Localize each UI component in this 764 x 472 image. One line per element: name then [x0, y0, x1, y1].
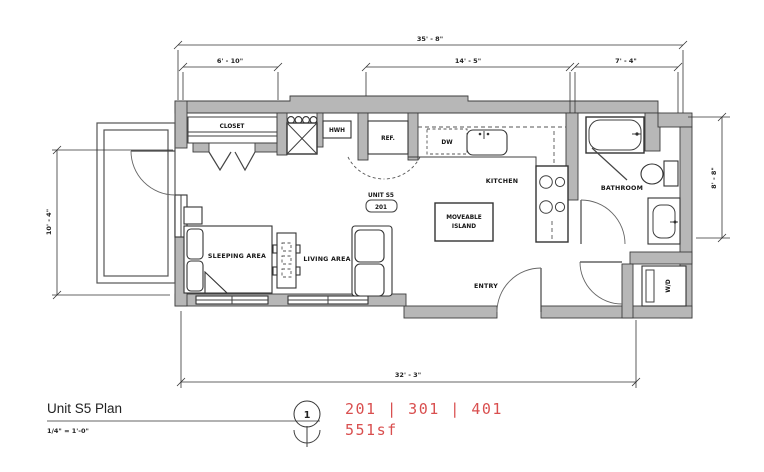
- island-label-2: ISLAND: [452, 224, 476, 230]
- pillow: [187, 229, 203, 259]
- wall-top: [175, 96, 658, 113]
- ref-label: REF.: [381, 136, 395, 142]
- unit-tag: UNIT S5 201: [366, 193, 397, 212]
- water-heater: HWH: [323, 121, 351, 138]
- range-stove: [536, 166, 568, 242]
- wall-step-topright: [658, 113, 692, 127]
- balcony: [97, 123, 175, 283]
- detail-number: 1: [304, 410, 311, 421]
- sleeping-area-label: SLEEPING AREA: [208, 253, 266, 260]
- refrigerator: REF.: [368, 121, 408, 154]
- hwh-label: HWH: [329, 128, 345, 134]
- wall-bottom-right-b: [541, 306, 692, 318]
- closet-bifold-doors: [209, 152, 255, 170]
- sheet-title: Unit S5 Plan: [47, 401, 122, 416]
- wall-bottom-right-a: [404, 306, 497, 318]
- bathroom-label: BATHROOM: [601, 185, 643, 192]
- wall-shaft-right: [317, 113, 323, 147]
- pillow: [187, 261, 203, 291]
- dim-left: 10' - 4": [45, 209, 53, 235]
- wall-wd-top: [630, 252, 692, 264]
- bathroom-door-swing: [581, 200, 625, 244]
- wall-ref-left: [358, 113, 368, 160]
- dim-bottom: 32' - 3": [395, 371, 421, 379]
- detail-marker-tail: [294, 426, 320, 447]
- sofa: [352, 226, 392, 296]
- title-block: Unit S5 Plan 1/4" = 1'-0" 1: [47, 401, 320, 447]
- mechanical-shaft: [287, 117, 317, 154]
- kitchen-label: KITCHEN: [486, 178, 518, 185]
- dimension-right-height: 8' - 8": [688, 113, 730, 242]
- floor-plan-sheet: CLOSET HWH REF. DW: [0, 0, 764, 472]
- wall-shaft-left: [277, 113, 287, 155]
- wall-ref-right: [408, 113, 418, 160]
- toilet: [641, 161, 678, 186]
- bed: [184, 207, 272, 293]
- floor-plan-drawing: CLOSET HWH REF. DW: [0, 0, 764, 472]
- wd-label: W/D: [666, 279, 672, 293]
- unit-name: UNIT S5: [368, 193, 394, 199]
- callout-unit-numbers: 201 | 301 | 401: [345, 400, 503, 418]
- dim-closet: 6' - 10": [217, 57, 243, 65]
- moveable-island: MOVEABLE ISLAND: [435, 203, 493, 241]
- media-console: [273, 233, 300, 288]
- living-area-label: LIVING AREA: [303, 256, 350, 263]
- kitchen-counter: DW: [408, 127, 566, 166]
- dimension-closet-width: 6' - 10": [179, 57, 282, 100]
- washer-dryer: W/D: [642, 266, 686, 306]
- wall-closet-stub-left: [193, 143, 209, 152]
- wall-left-top: [175, 101, 187, 148]
- wall-wd-left: [622, 264, 633, 318]
- entry-label: ENTRY: [474, 283, 498, 290]
- callout-area: 551sf: [345, 421, 398, 439]
- dim-bath: 7' - 4": [615, 57, 637, 65]
- wd-door-swing: [580, 262, 622, 304]
- unit-callout: 201 | 301 | 401 551sf: [345, 400, 503, 439]
- unit-number: 201: [375, 205, 387, 211]
- dimension-bottom-width: 32' - 3": [177, 311, 640, 388]
- bathtub: [586, 117, 644, 153]
- sheet-scale: 1/4" = 1'-0": [47, 427, 89, 435]
- closet: CLOSET: [188, 117, 277, 170]
- dim-right: 8' - 8": [710, 167, 718, 189]
- wall-closet-stub-right: [255, 143, 279, 152]
- island-label-1: MOVEABLE: [446, 215, 482, 221]
- dw-label: DW: [441, 140, 453, 146]
- dim-kitchen: 14' - 5": [455, 57, 481, 65]
- closet-label: CLOSET: [220, 124, 245, 130]
- bathroom-vanity-sink: [648, 198, 680, 244]
- nightstand: [184, 207, 202, 224]
- dim-overall: 35' - 8": [417, 35, 443, 43]
- entry-door-swing: [497, 268, 541, 312]
